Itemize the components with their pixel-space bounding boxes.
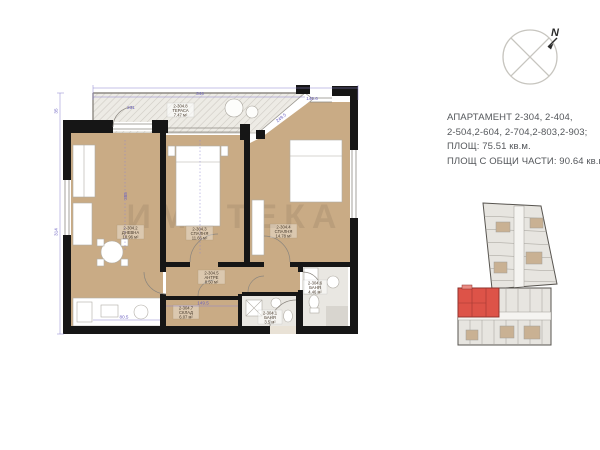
north-label: N — [551, 27, 560, 39]
bedroom2-bed — [290, 140, 342, 202]
apartment-plan: ИМОТЕКА — [54, 85, 359, 334]
svg-text:231: 231 — [127, 105, 135, 110]
cooktop — [134, 305, 148, 319]
svg-text:314: 314 — [54, 228, 59, 236]
kitchen-sink — [101, 305, 118, 317]
terrace-table — [225, 99, 243, 117]
dining-table — [101, 241, 123, 263]
apartment-common-area: ПЛОЩ С ОБЩИ ЧАСТИ: 90.64 кв.м. — [447, 155, 599, 170]
floorplan-page: ИМОТЕКА — [0, 0, 600, 450]
bedroom2-wardrobe — [252, 200, 264, 255]
apartment-numbers-line1: АПАРТАМЕНТ 2-304, 2-404, — [447, 111, 599, 126]
room-label-bath: 2-304.6 БАНЯ 4.46 м² — [303, 280, 327, 295]
toilet — [309, 295, 319, 309]
room-label-terrace: 2-304.8 ТЕРАСА 7.47 м² — [167, 103, 194, 118]
svg-text:8.50 м²: 8.50 м² — [205, 280, 219, 285]
svg-text:344: 344 — [196, 91, 204, 96]
room-label-living: 2-304.2 ДНЕВНА 18.96 м² — [117, 225, 144, 240]
entry-door-gap — [270, 326, 296, 334]
svg-text:80.5: 80.5 — [120, 315, 129, 320]
apartment-info: АПАРТАМЕНТ 2-304, 2-404, 2-504,2-604, 2-… — [447, 111, 599, 170]
apartment-area: ПЛОЩ: 75.51 кв.м. — [447, 140, 599, 155]
room-label-bedroom2: 2-304.4 СПАЛНЯ 14.78 м² — [270, 224, 297, 239]
room-label-bedroom1: 2-304.3 СПАЛНЯ 11.66 м² — [186, 226, 213, 241]
watermark: ИМОТЕКА — [127, 198, 344, 236]
living-cabinet — [73, 203, 92, 245]
svg-text:385: 385 — [123, 192, 128, 200]
bath-sink — [327, 276, 339, 288]
wc-sink — [271, 298, 281, 308]
svg-text:140.6: 140.6 — [306, 96, 318, 101]
wc-toilet — [284, 310, 293, 322]
svg-text:4.46 м²: 4.46 м² — [308, 290, 322, 295]
bedroom1-bed — [176, 146, 220, 226]
building-overview — [458, 203, 560, 345]
fridge — [77, 302, 92, 322]
apartment-numbers-line2: 2-504,2-604, 2-704,2-803,2-903; — [447, 126, 599, 141]
svg-text:6.07 м²: 6.07 м² — [179, 315, 193, 320]
svg-text:149.5: 149.5 — [197, 301, 209, 306]
highlighted-unit[interactable] — [458, 285, 499, 317]
floorplan-drawing: ИМОТЕКА — [0, 0, 600, 450]
room-label-hall: 2-304.5 АНТРЕ 8.50 м² — [198, 270, 225, 285]
svg-text:3.5 м²: 3.5 м² — [264, 320, 276, 325]
room-label-wc: 2-304.1 БАНЯ 3.5 м² — [258, 310, 282, 325]
svg-text:14.78 м²: 14.78 м² — [276, 234, 293, 239]
svg-text:35: 35 — [54, 108, 59, 114]
compass: N — [503, 27, 560, 84]
room-label-storage: 2-304.7 СКЛАД 6.07 м² — [173, 305, 199, 320]
svg-text:7.47 м²: 7.47 м² — [174, 113, 188, 118]
